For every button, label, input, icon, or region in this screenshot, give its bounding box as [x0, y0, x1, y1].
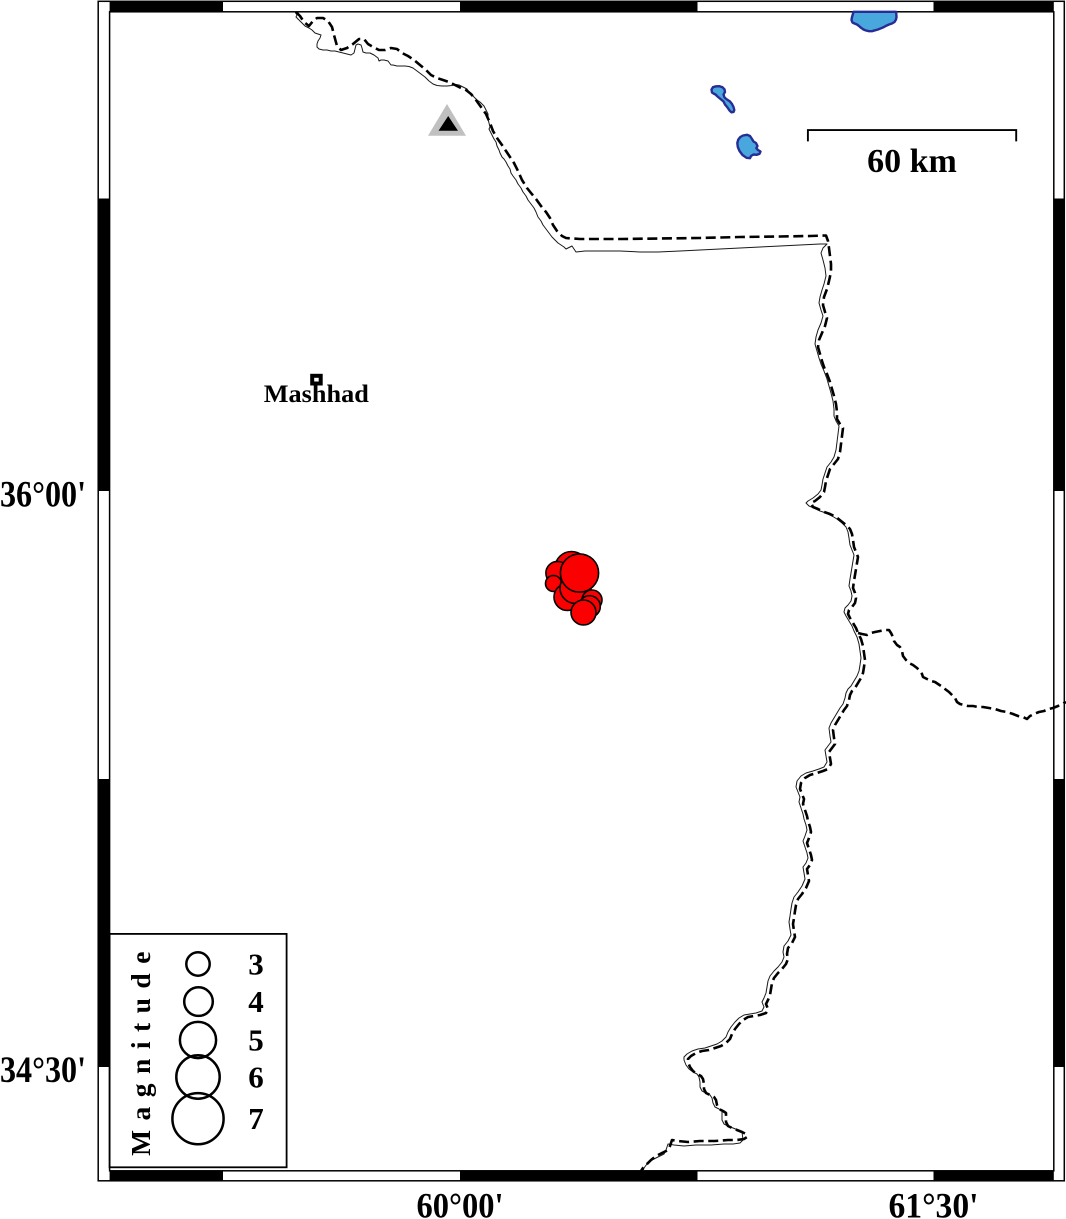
svg-text:5: 5 — [248, 1023, 264, 1058]
svg-text:34°30': 34°30' — [0, 1050, 86, 1091]
svg-text:Magnitude: Magnitude — [125, 942, 156, 1156]
svg-text:36°00': 36°00' — [0, 475, 86, 516]
svg-text:Mashhad: Mashhad — [264, 381, 369, 408]
svg-text:60°00': 60°00' — [417, 1186, 504, 1219]
svg-text:60 km: 60 km — [867, 143, 957, 180]
svg-text:3: 3 — [248, 947, 264, 982]
svg-text:6: 6 — [248, 1060, 264, 1095]
svg-text:4: 4 — [248, 984, 264, 1019]
svg-text:61°30': 61°30' — [889, 1186, 979, 1219]
svg-text:7: 7 — [248, 1101, 264, 1136]
